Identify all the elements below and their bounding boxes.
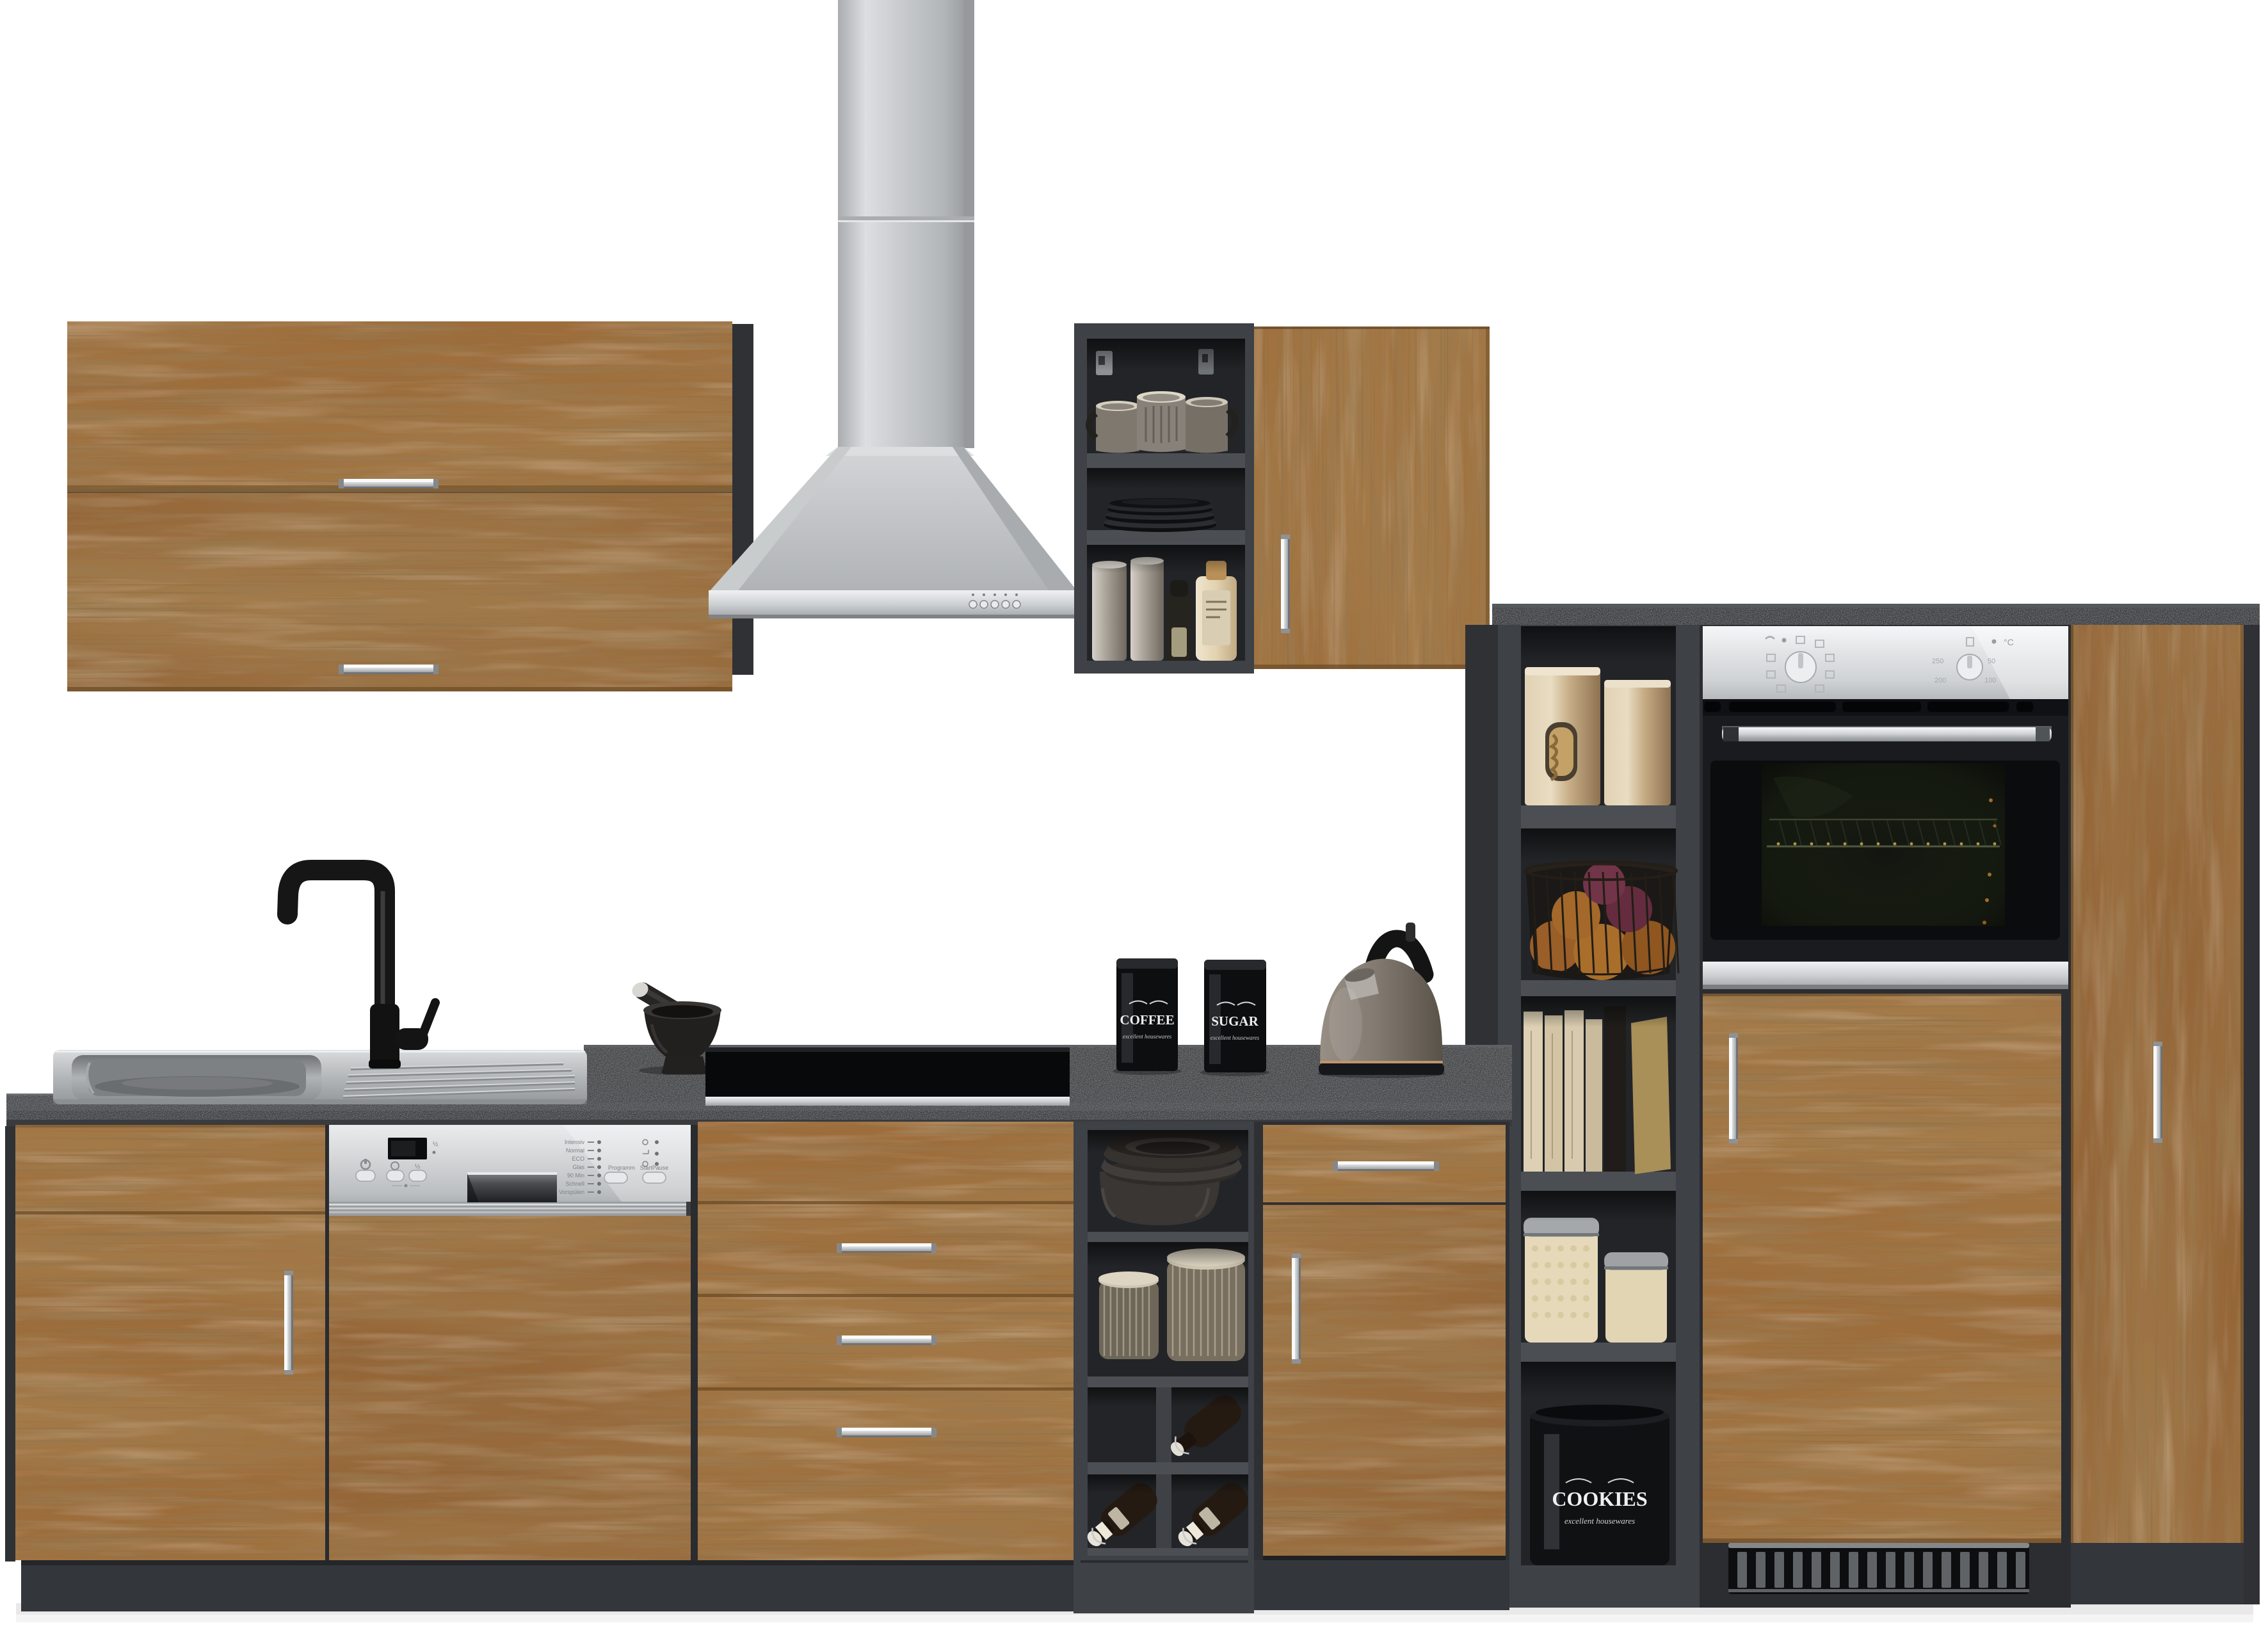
svg-text:SUGAR: SUGAR (1211, 1013, 1259, 1029)
svg-text:COFFEE: COFFEE (1120, 1012, 1174, 1028)
svg-text:Intensiv: Intensiv (565, 1139, 585, 1145)
svg-text:excellent housewares: excellent housewares (1210, 1035, 1260, 1041)
svg-text:100: 100 (1984, 677, 1996, 684)
svg-text:50: 50 (1988, 658, 1995, 665)
svg-text:½: ½ (415, 1163, 421, 1170)
svg-text:200: 200 (1934, 677, 1946, 684)
svg-text:excellent housewares: excellent housewares (1123, 1033, 1172, 1040)
svg-text:Vorspülen: Vorspülen (559, 1189, 584, 1195)
svg-text:Glas: Glas (572, 1164, 584, 1170)
svg-text:Normal: Normal (566, 1147, 584, 1154)
svg-text:excellent housewares: excellent housewares (1564, 1516, 1635, 1526)
svg-text:COOKIES: COOKIES (1552, 1487, 1647, 1510)
svg-text:Programm: Programm (608, 1165, 635, 1171)
svg-text:Schnell: Schnell (565, 1181, 584, 1187)
svg-text:90 Min: 90 Min (567, 1172, 584, 1179)
svg-text:ECO: ECO (572, 1156, 584, 1162)
svg-text:½: ½ (433, 1141, 438, 1148)
svg-text:StartPause: StartPause (640, 1165, 669, 1171)
svg-text:°C: °C (2004, 637, 2014, 647)
svg-text:250: 250 (1932, 658, 1943, 665)
